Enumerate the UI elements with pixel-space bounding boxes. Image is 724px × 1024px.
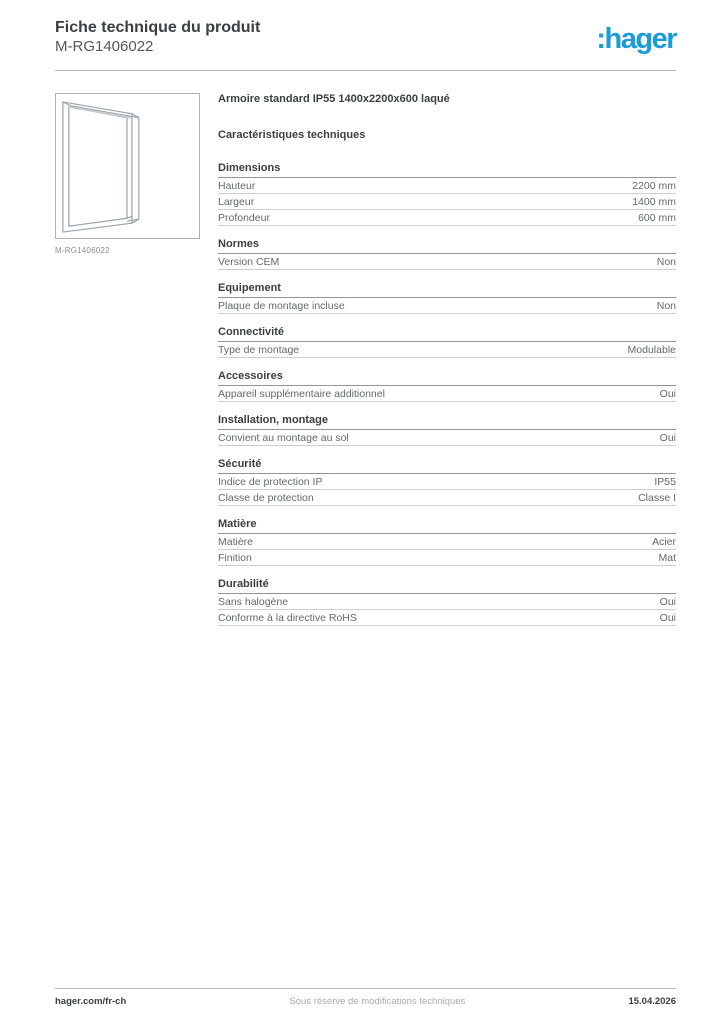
spec-label: Plaque de montage incluse xyxy=(218,300,345,312)
spec-value: Oui xyxy=(660,432,676,444)
footer-website: hager.com/fr-ch xyxy=(55,996,126,1007)
spec-section: Durabilité Sans halogène Oui Conforme à … xyxy=(218,578,676,626)
section-rows: Version CEM Non xyxy=(218,254,676,270)
section-title: Connectivité xyxy=(218,326,676,342)
spec-value: Oui xyxy=(660,612,676,624)
spec-row: Conforme à la directive RoHS Oui xyxy=(218,610,676,626)
datasheet-page: Fiche technique du produit M-RG1406022 :… xyxy=(0,0,724,1024)
spec-row: Plaque de montage incluse Non xyxy=(218,298,676,314)
section-rows: Indice de protection IP IP55 Classe de p… xyxy=(218,474,676,506)
footer-date: 15.04.2026 xyxy=(628,996,676,1007)
content-column: Armoire standard IP55 1400x2200x600 laqu… xyxy=(218,93,676,638)
spec-label: Indice de protection IP xyxy=(218,476,322,488)
spec-section: Normes Version CEM Non xyxy=(218,238,676,270)
section-rows: Convient au montage au sol Oui xyxy=(218,430,676,446)
spec-label: Conforme à la directive RoHS xyxy=(218,612,357,624)
spec-row: Matière Acier xyxy=(218,534,676,550)
section-rows: Appareil supplémentaire additionnel Oui xyxy=(218,386,676,402)
section-title: Dimensions xyxy=(218,162,676,178)
spec-value: IP55 xyxy=(654,476,676,488)
header-titles: Fiche technique du produit M-RG1406022 xyxy=(55,18,260,57)
tech-characteristics-heading: Caractéristiques techniques xyxy=(218,129,676,141)
spec-section: Connectivité Type de montage Modulable xyxy=(218,326,676,358)
spec-value: Oui xyxy=(660,596,676,608)
section-title: Equipement xyxy=(218,282,676,298)
spec-label: Matière xyxy=(218,536,253,548)
spec-row: Profondeur 600 mm xyxy=(218,210,676,226)
spec-row: Indice de protection IP IP55 xyxy=(218,474,676,490)
spec-row: Sans halogène Oui xyxy=(218,594,676,610)
spec-row: Largeur 1400 mm xyxy=(218,194,676,210)
spec-label: Finition xyxy=(218,552,252,564)
spec-section: Installation, montage Convient au montag… xyxy=(218,414,676,446)
spec-label: Type de montage xyxy=(218,344,299,356)
spec-label: Convient au montage au sol xyxy=(218,432,349,444)
spec-section: Sécurité Indice de protection IP IP55 Cl… xyxy=(218,458,676,506)
spec-label: Hauteur xyxy=(218,180,255,192)
spec-label: Appareil supplémentaire additionnel xyxy=(218,388,385,400)
spec-label: Version CEM xyxy=(218,256,279,268)
footer-divider xyxy=(55,988,676,989)
section-rows: Matière Acier Finition Mat xyxy=(218,534,676,566)
spec-sections: Dimensions Hauteur 2200 mm Largeur 1400 … xyxy=(218,162,676,626)
document-title: Fiche technique du produit xyxy=(55,18,260,38)
spec-label: Classe de protection xyxy=(218,492,314,504)
spec-value: 2200 mm xyxy=(632,180,676,192)
section-title: Accessoires xyxy=(218,370,676,386)
section-rows: Hauteur 2200 mm Largeur 1400 mm Profonde… xyxy=(218,178,676,226)
section-title: Installation, montage xyxy=(218,414,676,430)
spec-value: Modulable xyxy=(628,344,676,356)
section-title: Matière xyxy=(218,518,676,534)
spec-row: Finition Mat xyxy=(218,550,676,566)
hager-logo: :hager xyxy=(596,25,676,54)
section-rows: Sans halogène Oui Conforme à la directiv… xyxy=(218,594,676,626)
spec-value: 600 mm xyxy=(638,212,676,224)
section-title: Normes xyxy=(218,238,676,254)
spec-value: Non xyxy=(657,256,676,268)
spec-section: Equipement Plaque de montage incluse Non xyxy=(218,282,676,314)
product-name: Armoire standard IP55 1400x2200x600 laqu… xyxy=(218,93,676,105)
spec-value: Acier xyxy=(652,536,676,548)
spec-row: Type de montage Modulable xyxy=(218,342,676,358)
product-column: M-RG1406022 xyxy=(55,93,200,255)
product-image-caption: M-RG1406022 xyxy=(55,246,200,255)
spec-section: Dimensions Hauteur 2200 mm Largeur 1400 … xyxy=(218,162,676,226)
spec-row: Classe de protection Classe I xyxy=(218,490,676,506)
section-rows: Plaque de montage incluse Non xyxy=(218,298,676,314)
header-divider xyxy=(55,70,676,71)
product-reference: M-RG1406022 xyxy=(55,38,260,57)
spec-row: Hauteur 2200 mm xyxy=(218,178,676,194)
footer-disclaimer: Sous réserve de modifications techniques xyxy=(289,996,465,1007)
spec-value: Classe I xyxy=(638,492,676,504)
spec-value: 1400 mm xyxy=(632,196,676,208)
spec-section: Matière Matière Acier Finition Mat xyxy=(218,518,676,566)
spec-row: Version CEM Non xyxy=(218,254,676,270)
product-image xyxy=(55,93,200,239)
spec-value: Non xyxy=(657,300,676,312)
spec-section: Accessoires Appareil supplémentaire addi… xyxy=(218,370,676,402)
cabinet-frame-drawing xyxy=(56,93,199,239)
page-footer: hager.com/fr-ch Sous réserve de modifica… xyxy=(55,996,676,1007)
section-rows: Type de montage Modulable xyxy=(218,342,676,358)
spec-row: Convient au montage au sol Oui xyxy=(218,430,676,446)
spec-label: Largeur xyxy=(218,196,254,208)
section-title: Durabilité xyxy=(218,578,676,594)
spec-row: Appareil supplémentaire additionnel Oui xyxy=(218,386,676,402)
spec-label: Sans halogène xyxy=(218,596,288,608)
spec-value: Oui xyxy=(660,388,676,400)
section-title: Sécurité xyxy=(218,458,676,474)
spec-label: Profondeur xyxy=(218,212,270,224)
page-header: Fiche technique du produit M-RG1406022 :… xyxy=(55,18,676,57)
spec-value: Mat xyxy=(658,552,676,564)
